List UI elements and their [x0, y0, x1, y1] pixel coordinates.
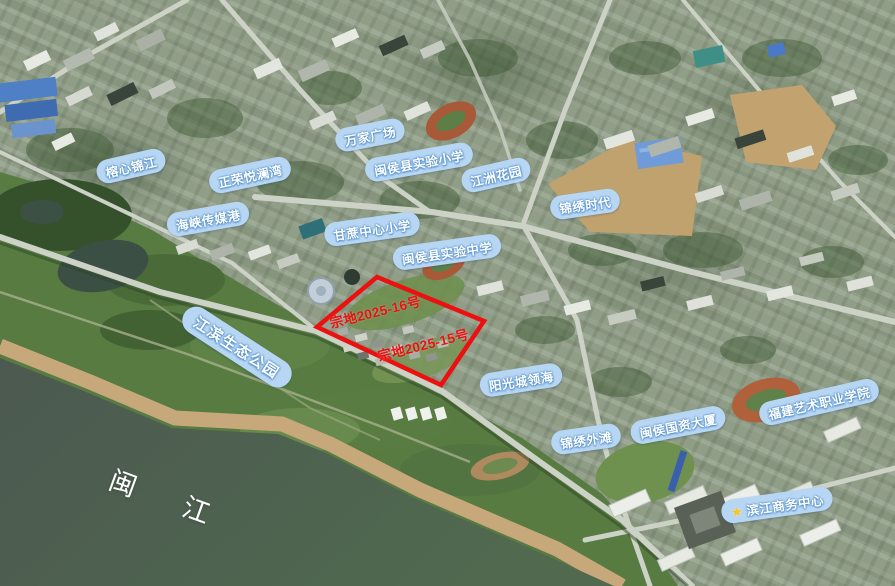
map-labels-layer: 闽 江 榕心锦江正荣悦澜湾海峡传媒港万家广场闽侯县实验小学江洲花园锦绣时代甘蔗中…	[0, 0, 895, 586]
satellite-map: 闽 江 榕心锦江正荣悦澜湾海峡传媒港万家广场闽侯县实验小学江洲花园锦绣时代甘蔗中…	[0, 0, 895, 586]
poi-label: 锦绣时代	[549, 187, 622, 221]
poi-label: ★滨江商务中心	[720, 485, 834, 524]
poi-label: 正荣悦澜湾	[207, 155, 293, 196]
poi-label: 闽侯国资大厦	[629, 404, 728, 446]
poi-label: 锦绣外滩	[550, 422, 623, 456]
poi-label: 江滨生态公园	[177, 301, 297, 393]
poi-label: 榕心锦江	[94, 146, 168, 185]
parcel-label: 宗地2025-15号	[375, 323, 470, 365]
poi-label: 甘蔗中心小学	[323, 210, 421, 247]
poi-label: 海峡传媒港	[165, 200, 251, 238]
poi-label: 阳光城领海	[478, 362, 564, 399]
poi-label: 闽侯县实验中学	[391, 233, 502, 272]
poi-label: 万家广场	[333, 117, 406, 154]
river-name-label: 闽 江	[104, 459, 227, 536]
poi-label: 闽侯县实验小学	[363, 141, 475, 184]
poi-label: 福建艺术职业学院	[757, 377, 881, 428]
parcel-label: 宗地2025-16号	[327, 290, 422, 332]
star-icon: ★	[729, 502, 744, 520]
